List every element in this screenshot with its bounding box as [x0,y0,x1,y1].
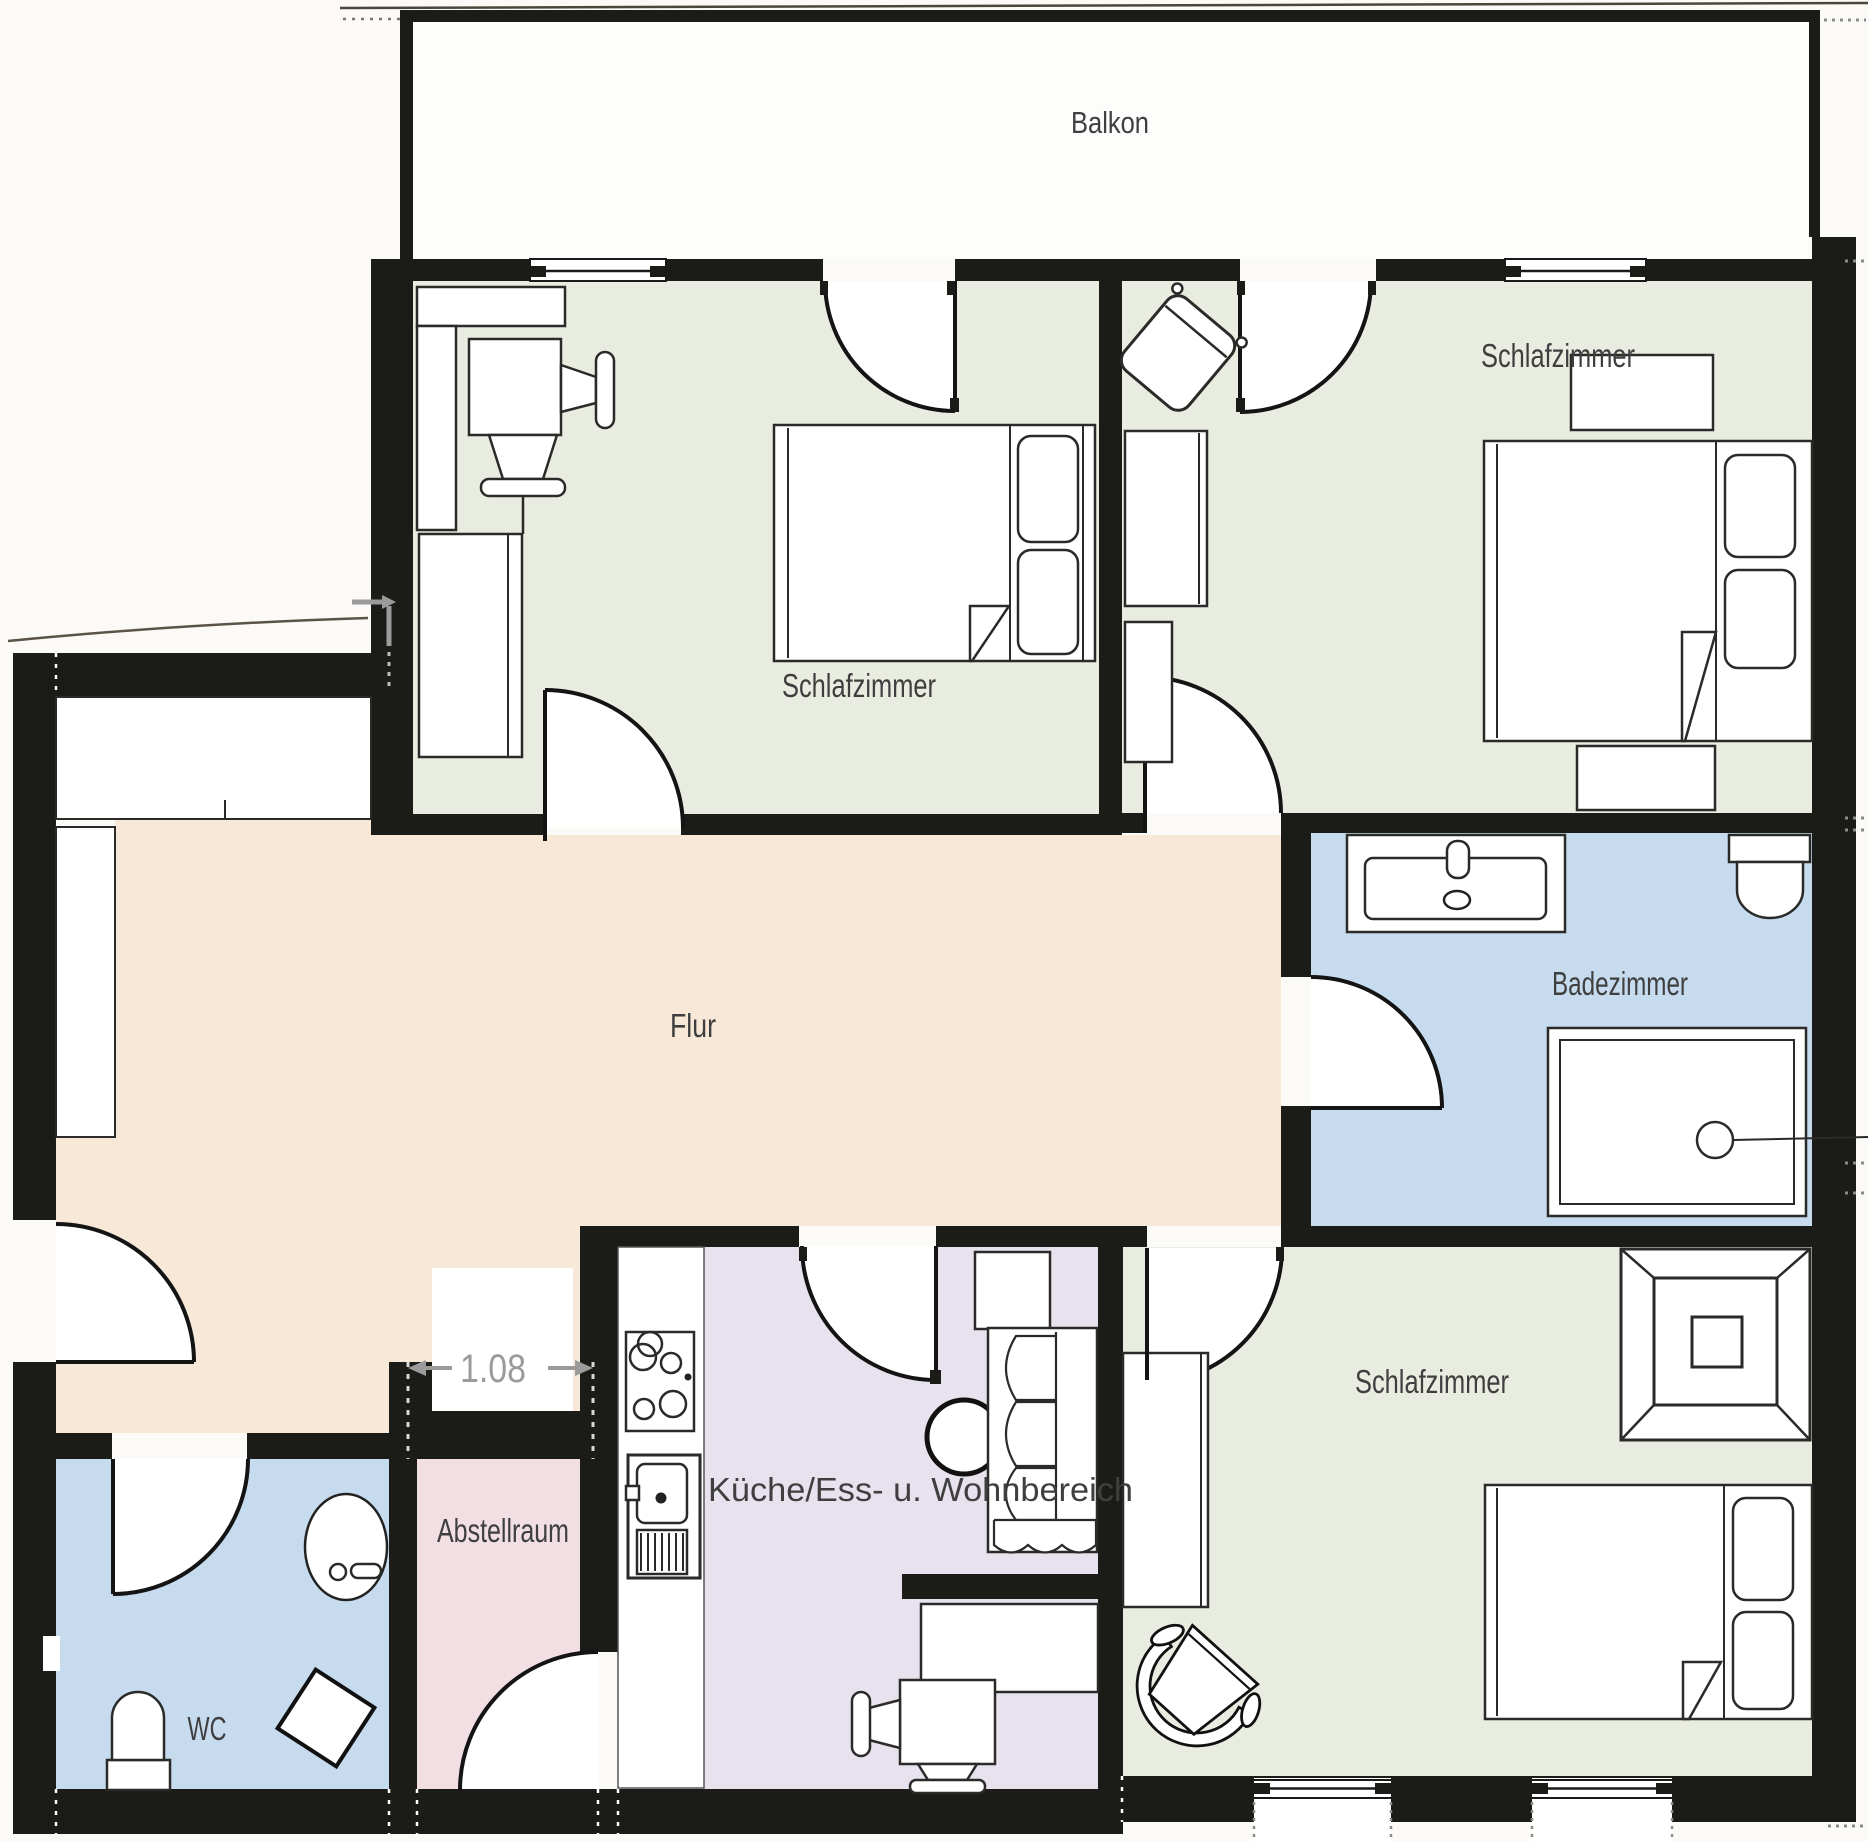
svg-text:Schlafzimmer: Schlafzimmer [782,667,936,704]
svg-text:WC: WC [188,1710,227,1747]
svg-text:Flur: Flur [670,1007,716,1044]
svg-text:Schlafzimmer: Schlafzimmer [1481,337,1635,374]
svg-text:Badezimmer: Badezimmer [1552,965,1688,1002]
svg-text:Schlafzimmer: Schlafzimmer [1355,1363,1509,1400]
svg-text:Küche/Ess- u. Wohnbereich: Küche/Ess- u. Wohnbereich [708,1471,1133,1508]
svg-text:1.08: 1.08 [460,1347,526,1391]
svg-text:Balkon: Balkon [1071,105,1149,140]
svg-text:Abstellraum: Abstellraum [437,1512,569,1549]
